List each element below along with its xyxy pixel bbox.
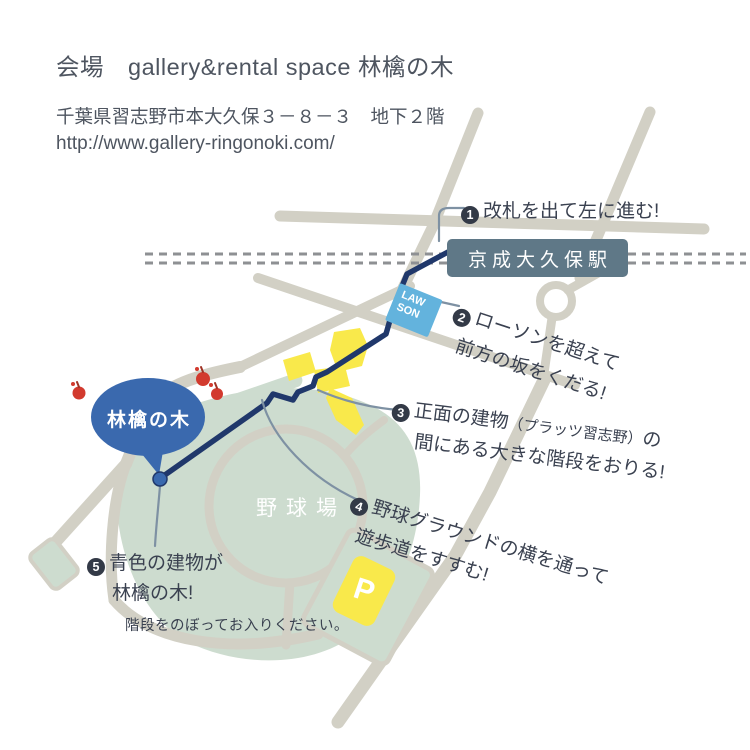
step-5-line2: 林檎の木! xyxy=(112,579,349,609)
gallery-bubble-label: 林檎の木 xyxy=(99,405,199,432)
step-5-line3: 階段をのぼってお入りください。 xyxy=(125,611,349,641)
apple-icon xyxy=(71,382,86,400)
step-5-badge: 5 xyxy=(87,558,105,576)
apple-icon xyxy=(209,383,223,400)
step-2-badge: 2 xyxy=(450,307,473,330)
venue-address: 千葉県習志野市本大久保３－８－３ 地下２階 xyxy=(56,103,445,129)
step-1-text: 改札を出て左に進む! xyxy=(483,201,659,222)
step-5-line1: 青色の建物が xyxy=(109,553,223,574)
page-title: 会場 gallery&rental space 林檎の木 xyxy=(56,48,454,82)
parking-label: P xyxy=(349,572,379,611)
step-1-badge: 1 xyxy=(461,206,479,224)
station-box: 京成大久保駅 xyxy=(447,239,628,277)
venue-url: http://www.gallery-ringonoki.com/ xyxy=(56,133,335,155)
step-4-badge: 4 xyxy=(348,496,370,518)
step-3-line1-pre: 正面の建物 xyxy=(413,401,510,433)
step-1: 1改札を出て左に進む! xyxy=(461,196,659,228)
step-5: 5青色の建物が 林檎の木! 階段をのぼってお入りください。 xyxy=(87,549,349,641)
step-3-line1-post: の xyxy=(641,429,662,452)
station-label: 京成大久保駅 xyxy=(463,245,612,272)
step-3-badge: 3 xyxy=(391,403,411,423)
building-block-2 xyxy=(283,352,316,381)
ballpark-label: 野球場 xyxy=(256,492,346,522)
destination-dot xyxy=(153,472,167,486)
